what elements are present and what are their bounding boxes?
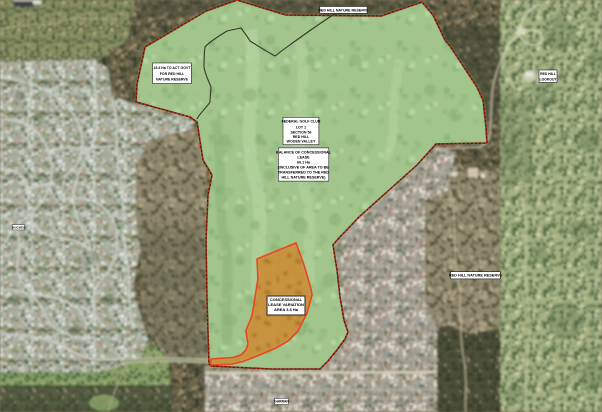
svg-text:GARRAN: GARRAN <box>274 400 289 404</box>
svg-text:RED HILL: RED HILL <box>540 72 556 76</box>
svg-text:BALANCE OF CONCESSIONAL: BALANCE OF CONCESSIONAL <box>276 151 332 155</box>
svg-text:HUGHES: HUGHES <box>12 225 25 229</box>
svg-text:LOT 1: LOT 1 <box>296 126 306 130</box>
svg-text:(INCLUSIVE OF AREA TO BE: (INCLUSIVE OF AREA TO BE <box>278 166 329 170</box>
svg-text:LEASE: LEASE <box>297 156 310 160</box>
svg-text:FOR RED HILL: FOR RED HILL <box>160 72 185 76</box>
svg-text:SECTION 56: SECTION 56 <box>291 130 312 134</box>
svg-text:AREA 3.6 Ha: AREA 3.6 Ha <box>274 307 299 312</box>
svg-text:RED HILL NATURE RESERVE: RED HILL NATURE RESERVE <box>449 274 503 278</box>
svg-text:RED HILL: RED HILL <box>293 135 310 139</box>
svg-text:WODEN VALLEY: WODEN VALLEY <box>287 140 316 144</box>
svg-text:FEDERAL GOLF CLUB: FEDERAL GOLF CLUB <box>282 119 321 123</box>
svg-text:HILL NATURE RESERVE): HILL NATURE RESERVE) <box>281 176 326 180</box>
svg-text:TRANSFERRED TO THE RED: TRANSFERRED TO THE RED <box>278 171 329 175</box>
svg-text:LOOKOUT: LOOKOUT <box>540 77 558 81</box>
svg-text:NATURE RESERVE: NATURE RESERVE <box>156 78 189 82</box>
svg-text:66.1 Ha: 66.1 Ha <box>297 161 311 165</box>
svg-text:16.4 Ha TO ACT GOVT: 16.4 Ha TO ACT GOVT <box>154 66 192 70</box>
svg-text:RED HILL NATURE RESERVE: RED HILL NATURE RESERVE <box>318 8 369 12</box>
